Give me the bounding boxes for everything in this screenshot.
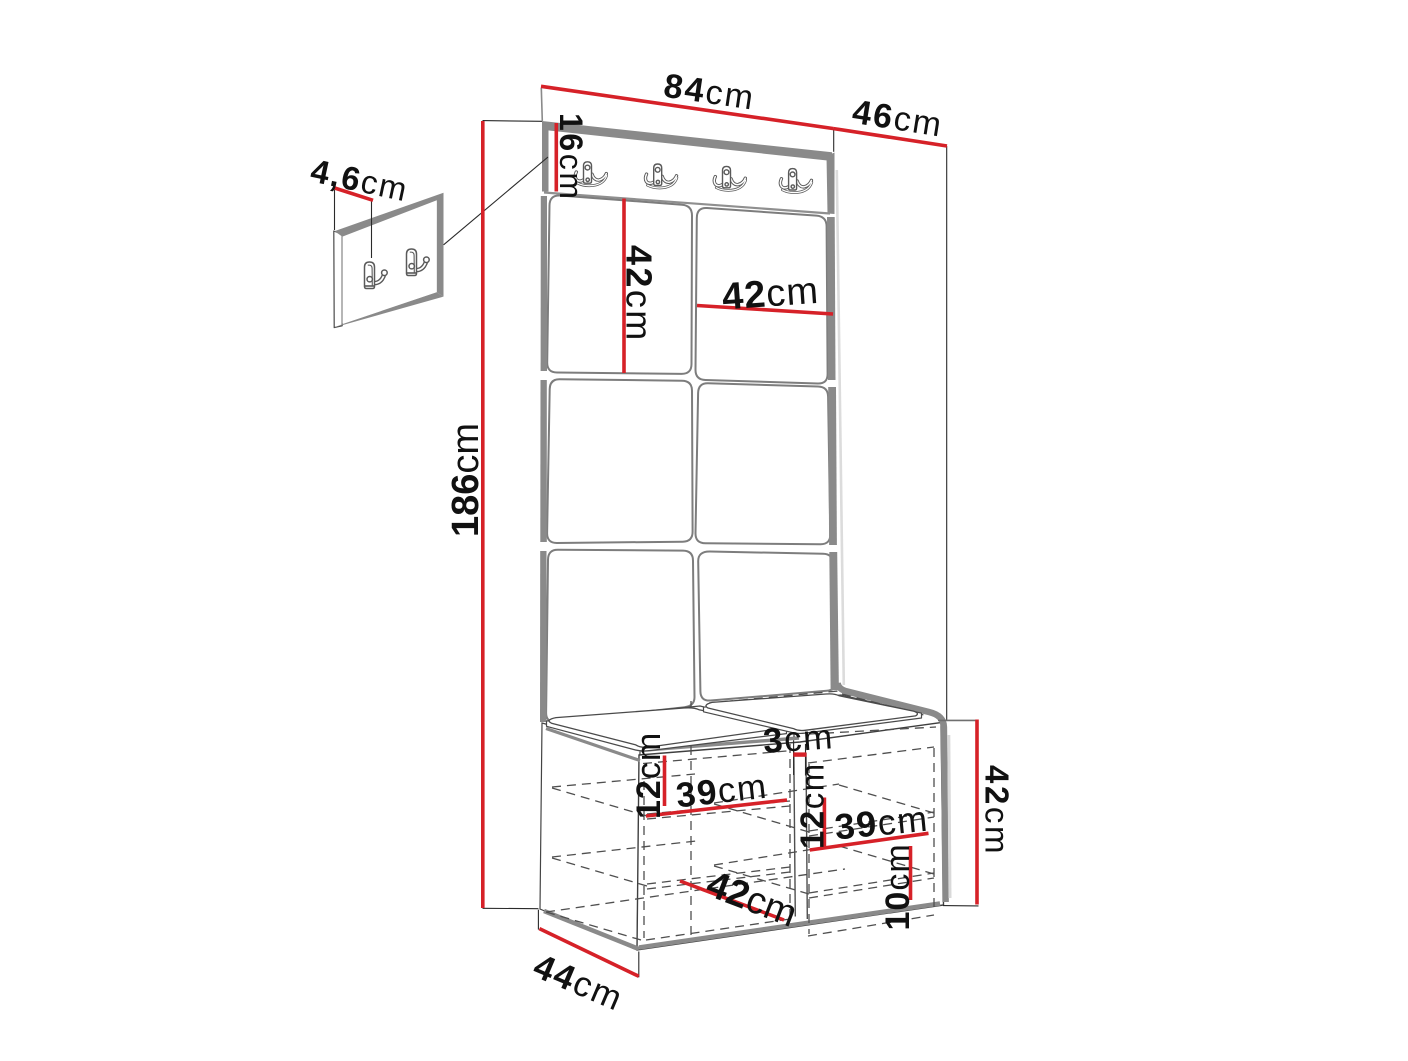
svg-text:42cm: 42cm (979, 765, 1016, 856)
svg-text:12cm: 12cm (630, 732, 668, 819)
svg-text:186cm: 186cm (445, 423, 487, 537)
svg-text:12cm: 12cm (794, 762, 831, 849)
svg-text:10cm: 10cm (879, 843, 917, 930)
svg-text:16cm: 16cm (553, 113, 589, 202)
svg-text:42cm: 42cm (619, 245, 660, 343)
svg-text:3cm: 3cm (762, 717, 835, 761)
svg-text:42cm: 42cm (721, 270, 821, 319)
